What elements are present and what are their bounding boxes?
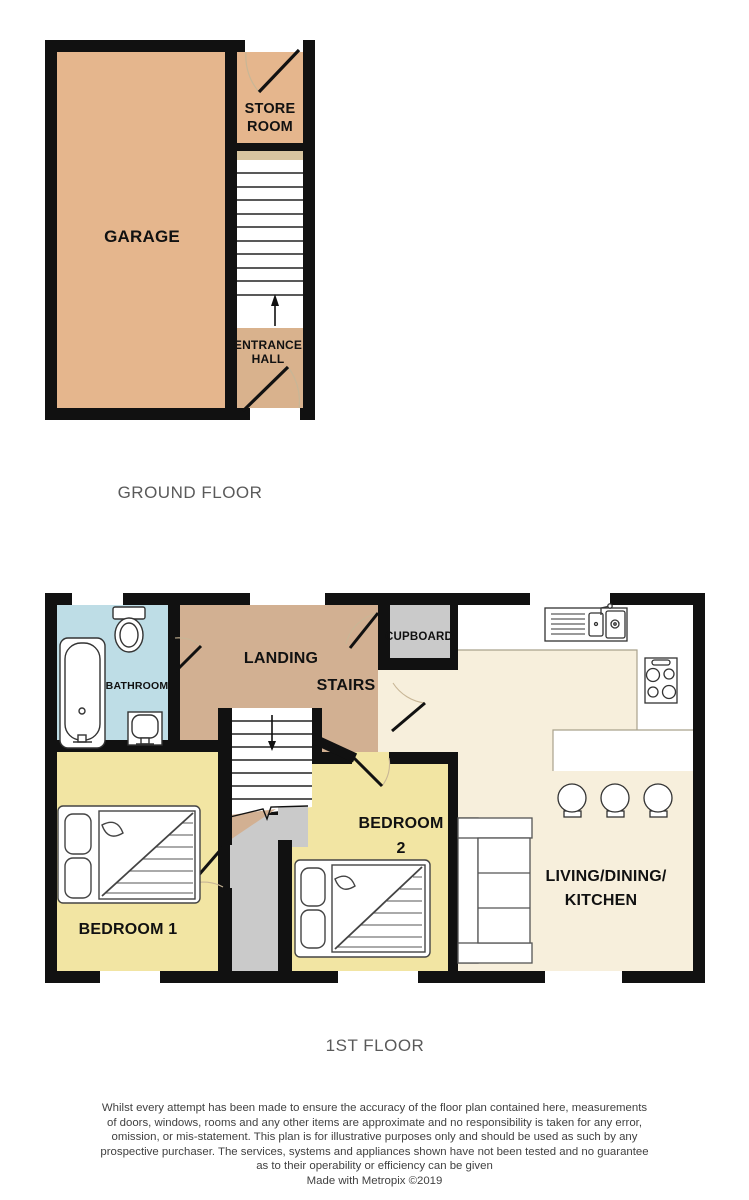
landing-window bbox=[250, 593, 325, 605]
entrance-hall-label-line1: ENTRANCE bbox=[234, 338, 302, 352]
breakfast-bar bbox=[553, 730, 693, 771]
bedroom2-label-line2: 2 bbox=[396, 840, 405, 858]
garage-label: GARAGE bbox=[104, 227, 180, 247]
metropix-credit: Made with Metropix ©2019 bbox=[0, 1174, 749, 1189]
living-label-line2: KITCHEN bbox=[565, 892, 638, 910]
toilet bbox=[113, 607, 145, 652]
bedroom1-window bbox=[100, 971, 160, 983]
disclaimer-line: of doors, windows, rooms and any other i… bbox=[0, 1116, 749, 1131]
cupboard-label: CUPBOARD bbox=[385, 631, 453, 643]
stair-top-strip bbox=[237, 151, 303, 160]
store-room-label-line2: ROOM bbox=[247, 119, 293, 135]
bathroom-basin bbox=[128, 712, 162, 745]
corridor-gray bbox=[230, 815, 278, 971]
bedroom2-label-line1: BEDROOM bbox=[359, 815, 444, 833]
bedroom1-label: BEDROOM 1 bbox=[79, 921, 178, 939]
disclaimer-line: as to their operability or efficiency ca… bbox=[0, 1159, 749, 1174]
ground-floor-caption: GROUND FLOOR bbox=[118, 483, 263, 503]
landing-label: LANDING bbox=[244, 650, 318, 668]
bedroom2-bed bbox=[295, 860, 430, 957]
disclaimer-line: omission, or mis-statement. This plan is… bbox=[0, 1130, 749, 1145]
bedroom2-window bbox=[338, 971, 418, 983]
sofa bbox=[458, 818, 532, 963]
disclaimer-line: Whilst every attempt has been made to en… bbox=[0, 1101, 749, 1116]
hob bbox=[645, 658, 677, 703]
kitchen-doorway-floor bbox=[378, 670, 458, 752]
kitchen-window bbox=[530, 593, 610, 605]
store-room-label-line1: STORE bbox=[245, 101, 296, 117]
bathroom-label: BATHROOM bbox=[106, 680, 169, 692]
entrance-hall-label-line2: HALL bbox=[252, 352, 285, 366]
floorplan-page: GARAGE STORE ROOM ENTRANCE HALL GROUND F… bbox=[0, 0, 749, 1200]
bar-stools bbox=[558, 784, 672, 817]
living-window bbox=[545, 971, 622, 983]
first-floor-caption: 1ST FLOOR bbox=[326, 1036, 425, 1056]
bathtub bbox=[60, 638, 105, 748]
disclaimer: Whilst every attempt has been made to en… bbox=[0, 1101, 749, 1189]
living-label-line1: LIVING/DINING/ bbox=[545, 868, 666, 886]
bathroom-window bbox=[72, 593, 123, 605]
stairs-label: STAIRS bbox=[317, 677, 376, 695]
disclaimer-line: prospective purchaser. The services, sys… bbox=[0, 1145, 749, 1160]
ground-stairs-floor bbox=[237, 160, 303, 328]
kitchen-sink bbox=[545, 604, 627, 641]
bedroom1-bed bbox=[58, 806, 200, 903]
